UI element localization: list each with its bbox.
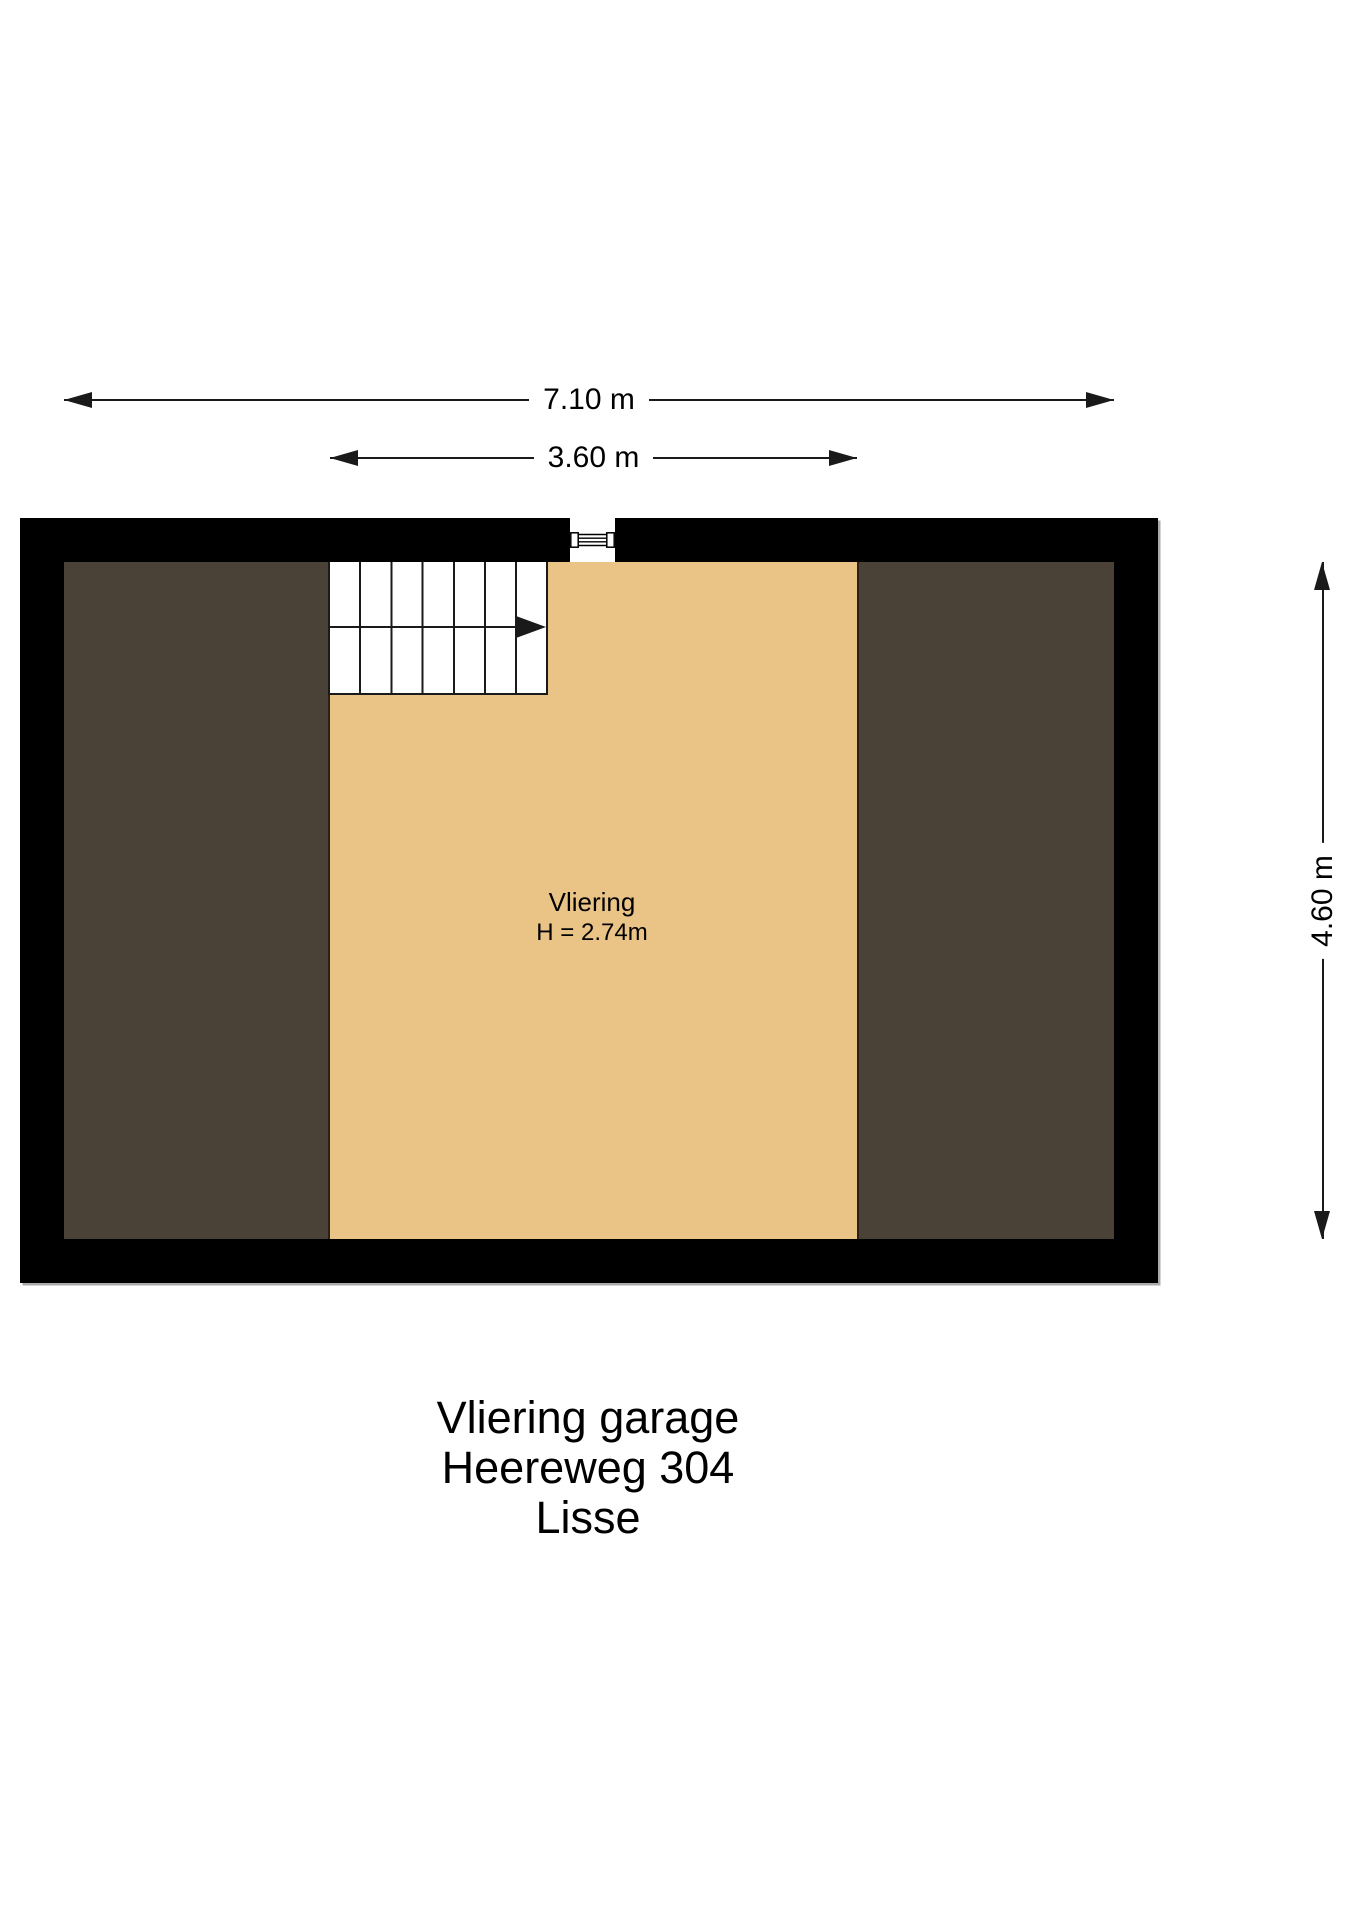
arrowhead-right-icon: [829, 450, 857, 466]
stair-walkline: [330, 626, 518, 628]
room-name: Vliering: [392, 886, 792, 918]
title-line-2: Heereweg 304: [288, 1443, 888, 1493]
floor-boundary-line: [857, 562, 859, 1239]
floorplan-page: 7.10 m 3.60 m 4.60 m Vliering H = 2.74m: [0, 0, 1358, 1920]
dimension-label: 3.60 m: [534, 443, 654, 473]
roof-hatch-ladder-icon: [570, 532, 615, 548]
room-height-note: H = 2.74m: [392, 918, 792, 948]
arrowhead-left-icon: [330, 450, 358, 466]
arrowhead-up-icon: [1314, 562, 1330, 590]
plan-title: Vliering garage Heereweg 304 Lisse: [288, 1393, 888, 1543]
arrowhead-left-icon: [64, 392, 92, 408]
dimension-label: 7.10 m: [529, 385, 649, 415]
stair-direction-arrow-icon: [516, 616, 546, 638]
dimension-label: 4.60 m: [1308, 843, 1338, 959]
arrowhead-down-icon: [1314, 1211, 1330, 1239]
arrowhead-right-icon: [1086, 392, 1114, 408]
dimension-overall-depth: 4.60 m: [1308, 562, 1338, 1239]
dimension-overall-width: 7.10 m: [64, 385, 1114, 415]
title-line-3: Lisse: [288, 1493, 888, 1543]
room-label: Vliering H = 2.74m: [392, 886, 792, 948]
floor-region-dark-left: [64, 562, 328, 1239]
title-line-1: Vliering garage: [288, 1393, 888, 1443]
dimension-vliering-width: 3.60 m: [330, 443, 857, 473]
floor-region-dark-right: [859, 562, 1114, 1239]
staircase: [328, 562, 548, 695]
